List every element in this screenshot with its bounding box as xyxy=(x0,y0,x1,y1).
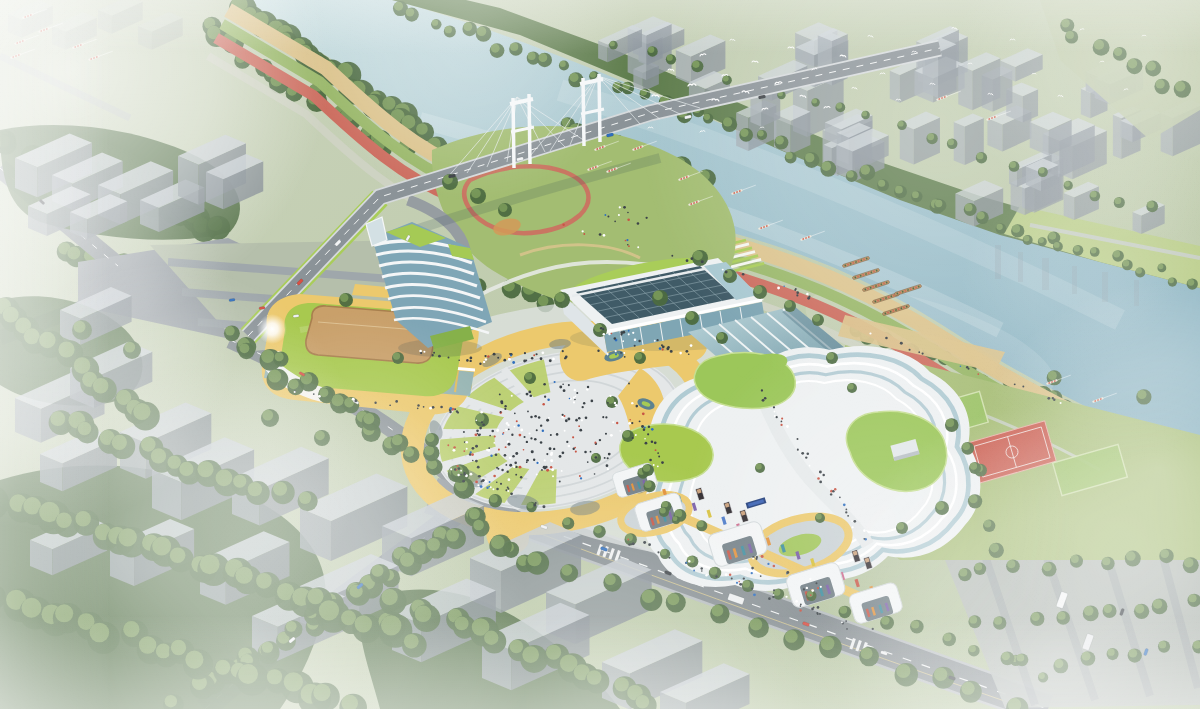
edge-haze-left xyxy=(0,0,110,709)
edge-haze-top xyxy=(0,0,1200,54)
aerial-rendering xyxy=(0,0,1200,709)
aerial-rendering-canvas xyxy=(0,0,1200,709)
edge-haze-bottom xyxy=(0,615,1200,709)
